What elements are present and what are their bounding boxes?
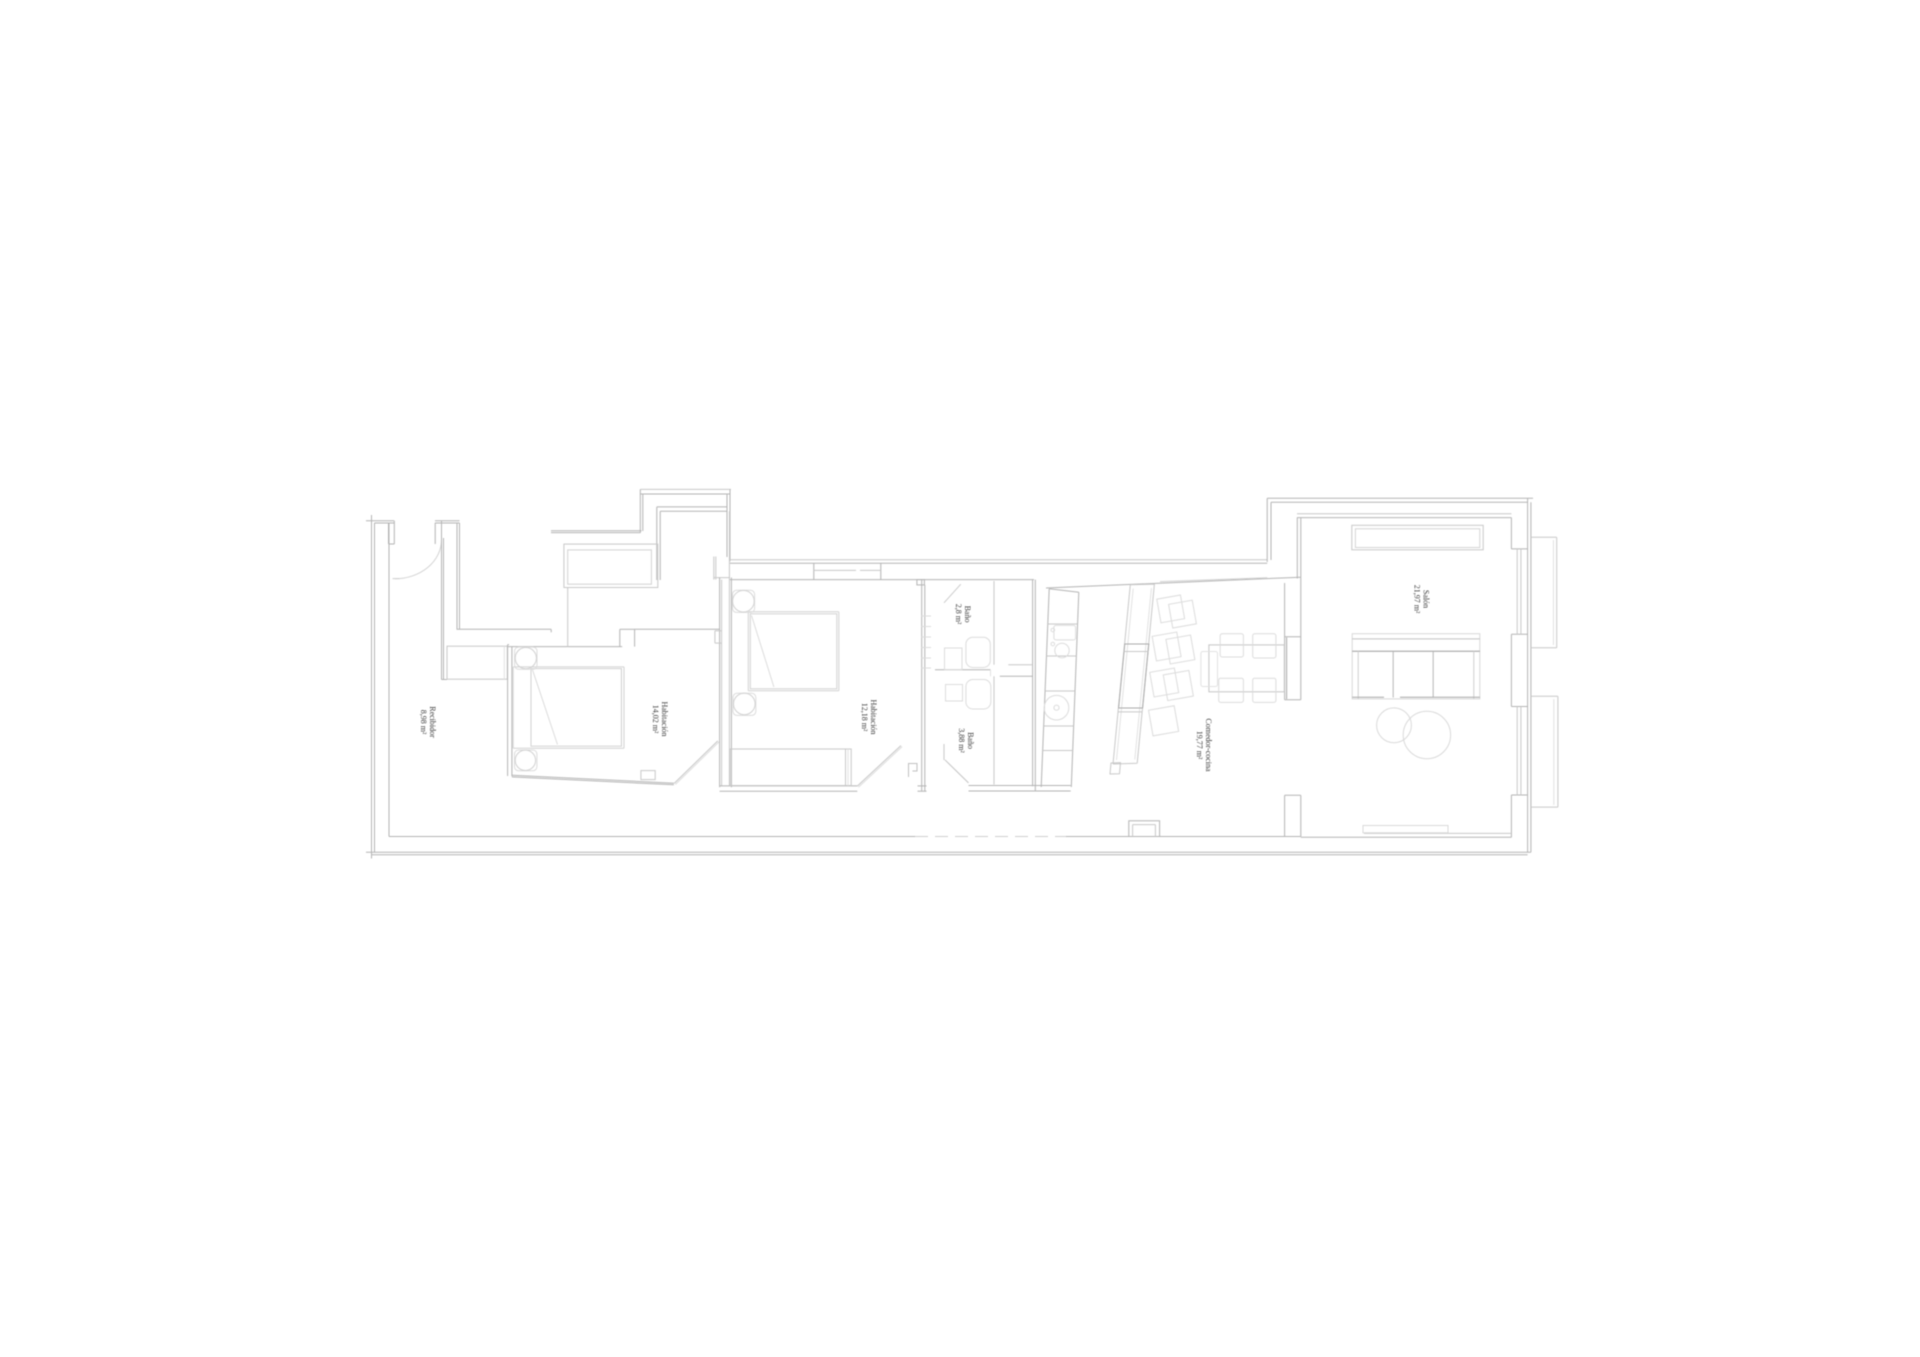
svg-text:Habitación: Habitación: [660, 701, 669, 736]
svg-text:2,8 m²: 2,8 m²: [954, 604, 963, 625]
svg-text:3,88 m²: 3,88 m²: [957, 728, 966, 753]
svg-text:19,77 m²: 19,77 m²: [1195, 731, 1204, 760]
svg-text:Habitación: Habitación: [869, 699, 878, 734]
svg-text:21,97 m²: 21,97 m²: [1413, 585, 1422, 614]
svg-text:14,02 m²: 14,02 m²: [651, 705, 660, 734]
svg-text:12,18 m²: 12,18 m²: [860, 703, 869, 732]
svg-text:Recibidor: Recibidor: [428, 706, 437, 738]
svg-text:Baño: Baño: [963, 606, 972, 623]
svg-text:Baño: Baño: [966, 732, 975, 749]
svg-text:Comedor-cocina: Comedor-cocina: [1204, 718, 1213, 772]
svg-text:8,98 m²: 8,98 m²: [419, 710, 428, 735]
svg-text:Salón: Salón: [1422, 590, 1431, 608]
